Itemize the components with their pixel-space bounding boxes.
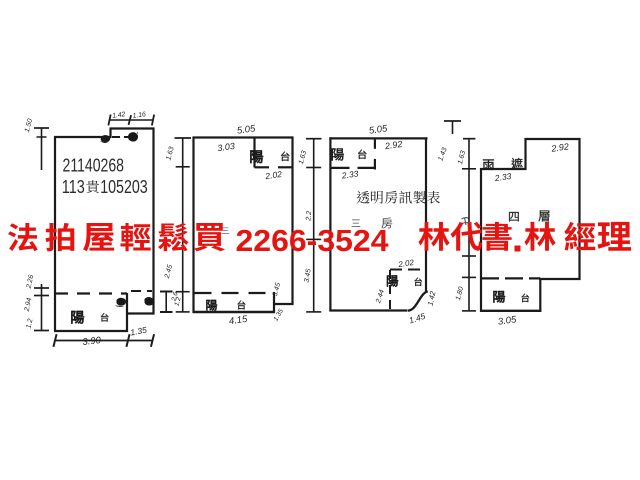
- svg-text:105203: 105203: [100, 176, 148, 197]
- svg-text:21140268: 21140268: [63, 155, 125, 176]
- svg-text:113: 113: [62, 176, 85, 197]
- svg-text:2266-3524: 2266-3524: [236, 224, 389, 258]
- svg-text:2.2: 2.2: [305, 211, 313, 222]
- svg-text:3.90: 3.90: [82, 335, 102, 348]
